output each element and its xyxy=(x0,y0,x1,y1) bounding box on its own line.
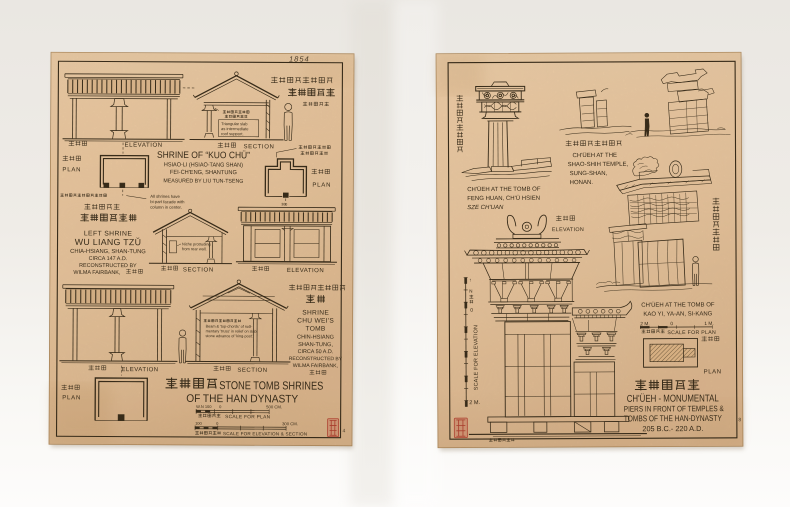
svg-text:PLAN: PLAN xyxy=(62,395,81,401)
svg-text:2 M.: 2 M. xyxy=(469,400,480,406)
svg-text:0: 0 xyxy=(470,308,473,314)
svg-text:CH'ÜEH AT THE TOMB OF: CH'ÜEH AT THE TOMB OF xyxy=(467,186,541,193)
svg-text:TOMBS OF THE HAN-DYNASTY: TOMBS OF THE HAN-DYNASTY xyxy=(624,413,722,423)
svg-text:FEI-CH'ENG, SHANTUNG: FEI-CH'ENG, SHANTUNG xyxy=(170,170,237,176)
svg-text:MEASURED BY LIU TUN-TSENG: MEASURED BY LIU TUN-TSENG xyxy=(163,178,243,184)
svg-text:SHRINE: SHRINE xyxy=(302,310,329,317)
svg-text:from rear wall.: from rear wall. xyxy=(182,246,207,251)
svg-text:ELEVATION: ELEVATION xyxy=(552,227,584,233)
svg-text:4: 4 xyxy=(343,428,346,434)
svg-text:100: 100 xyxy=(195,421,202,426)
svg-text:SHAO-SHIH TEMPLE,: SHAO-SHIH TEMPLE, xyxy=(568,162,629,168)
svg-text:CIRCA 147 A.D.: CIRCA 147 A.D. xyxy=(89,256,128,262)
svg-text:Beam & 'top-chords' of rudi-: Beam & 'top-chords' of rudi- xyxy=(206,325,254,329)
svg-text:stone advance of 'king-post'.: stone advance of 'king-post'. xyxy=(206,334,254,338)
svg-text:KAO YI, YA-AN, SI-KANG: KAO YI, YA-AN, SI-KANG xyxy=(643,311,712,317)
svg-text:HSIAO-LI (HSIAO-TANG SHAN): HSIAO-LI (HSIAO-TANG SHAN) xyxy=(164,162,243,168)
svg-text:All shrines have: All shrines have xyxy=(150,194,180,199)
svg-text:TOMB: TOMB xyxy=(305,326,325,333)
svg-text:SECTION: SECTION xyxy=(237,368,267,374)
svg-text:CH'ÜEH AT THE TOMB OF: CH'ÜEH AT THE TOMB OF xyxy=(641,301,715,308)
svg-text:N: N xyxy=(469,289,472,294)
svg-text:SCALE FOR PLAN: SCALE FOR PLAN xyxy=(225,414,271,420)
svg-text:CH'ÜEH - MONUMENTAL: CH'ÜEH - MONUMENTAL xyxy=(627,392,719,404)
svg-text:bi-part facade with: bi-part facade with xyxy=(150,199,185,204)
svg-text:↑: ↑ xyxy=(469,278,472,284)
svg-text:500 CM.: 500 CM. xyxy=(266,404,282,409)
svg-text:PLAN: PLAN xyxy=(62,167,81,173)
svg-text:SCALE FOR ELEVATION: SCALE FOR ELEVATION xyxy=(473,325,479,390)
svg-text:RECONSTRUCTED BY: RECONSTRUCTED BY xyxy=(289,356,343,362)
svg-text:ELEVATION: ELEVATION xyxy=(125,143,163,149)
svg-text:WU LIANG TZŬ: WU LIANG TZŬ xyxy=(75,237,142,247)
svg-text:300 CM.: 300 CM. xyxy=(282,421,298,426)
svg-text:WILMA FAIRBANK,: WILMA FAIRBANK, xyxy=(293,363,338,369)
svg-text:CHIA-HSIANG, SHAN-TUNG: CHIA-HSIANG, SHAN-TUNG xyxy=(70,249,146,255)
svg-text:roof support.: roof support. xyxy=(221,131,243,136)
svg-text:CHU WEI'S: CHU WEI'S xyxy=(297,318,334,325)
svg-text:WILMA FAIRBANK,: WILMA FAIRBANK, xyxy=(73,270,121,276)
svg-text:mentary 'truss' in relief on s: mentary 'truss' in relief on slab: xyxy=(206,329,258,333)
svg-text:8: 8 xyxy=(738,417,741,423)
svg-text:RECONSTRUCTED BY: RECONSTRUCTED BY xyxy=(79,263,137,269)
svg-text:ELEVATION: ELEVATION xyxy=(121,367,158,373)
svg-text:SHAN-TUNG,: SHAN-TUNG, xyxy=(298,342,333,348)
svg-text:STONE TOMB SHRINES: STONE TOMB SHRINES xyxy=(219,380,323,393)
svg-text:1854: 1854 xyxy=(289,54,310,63)
svg-text:PLAN: PLAN xyxy=(704,369,722,375)
svg-text:CIRCA 50 A.D.: CIRCA 50 A.D. xyxy=(298,349,334,355)
svg-text:ELEVATION: ELEVATION xyxy=(287,268,324,274)
svg-text:SECTION: SECTION xyxy=(183,267,214,273)
svg-text:SHRINE OF “KUO CHÜ”: SHRINE OF “KUO CHÜ” xyxy=(157,150,250,160)
svg-text:PLAN: PLAN xyxy=(312,183,331,189)
svg-text:HONAN.: HONAN. xyxy=(570,180,594,186)
svg-text:W.N 100: W.N 100 xyxy=(196,404,212,409)
svg-text:CHIN-HSIANG: CHIN-HSIANG xyxy=(297,335,334,341)
svg-text:SCALE FOR PLAN: SCALE FOR PLAN xyxy=(667,330,716,336)
svg-text:CH'ÜEH AT THE: CH'ÜEH AT THE xyxy=(573,152,618,159)
svg-text:SUNG-SHAN,: SUNG-SHAN, xyxy=(570,171,608,177)
svg-text:SCALE FOR ELEVATION & SECTION: SCALE FOR ELEVATION & SECTION xyxy=(223,431,307,436)
svg-text:FENG HUAN, CH'Ü HSIEN: FENG HUAN, CH'Ü HSIEN xyxy=(467,195,540,202)
svg-text:300: 300 xyxy=(281,202,287,206)
svg-text:205 B.C.- 220 A.D.: 205 B.C.- 220 A.D. xyxy=(642,424,703,433)
svg-text:column in center.: column in center. xyxy=(150,205,182,210)
svg-text:SZE CH’UAN: SZE CH’UAN xyxy=(467,205,504,211)
svg-text:0: 0 xyxy=(670,321,673,327)
